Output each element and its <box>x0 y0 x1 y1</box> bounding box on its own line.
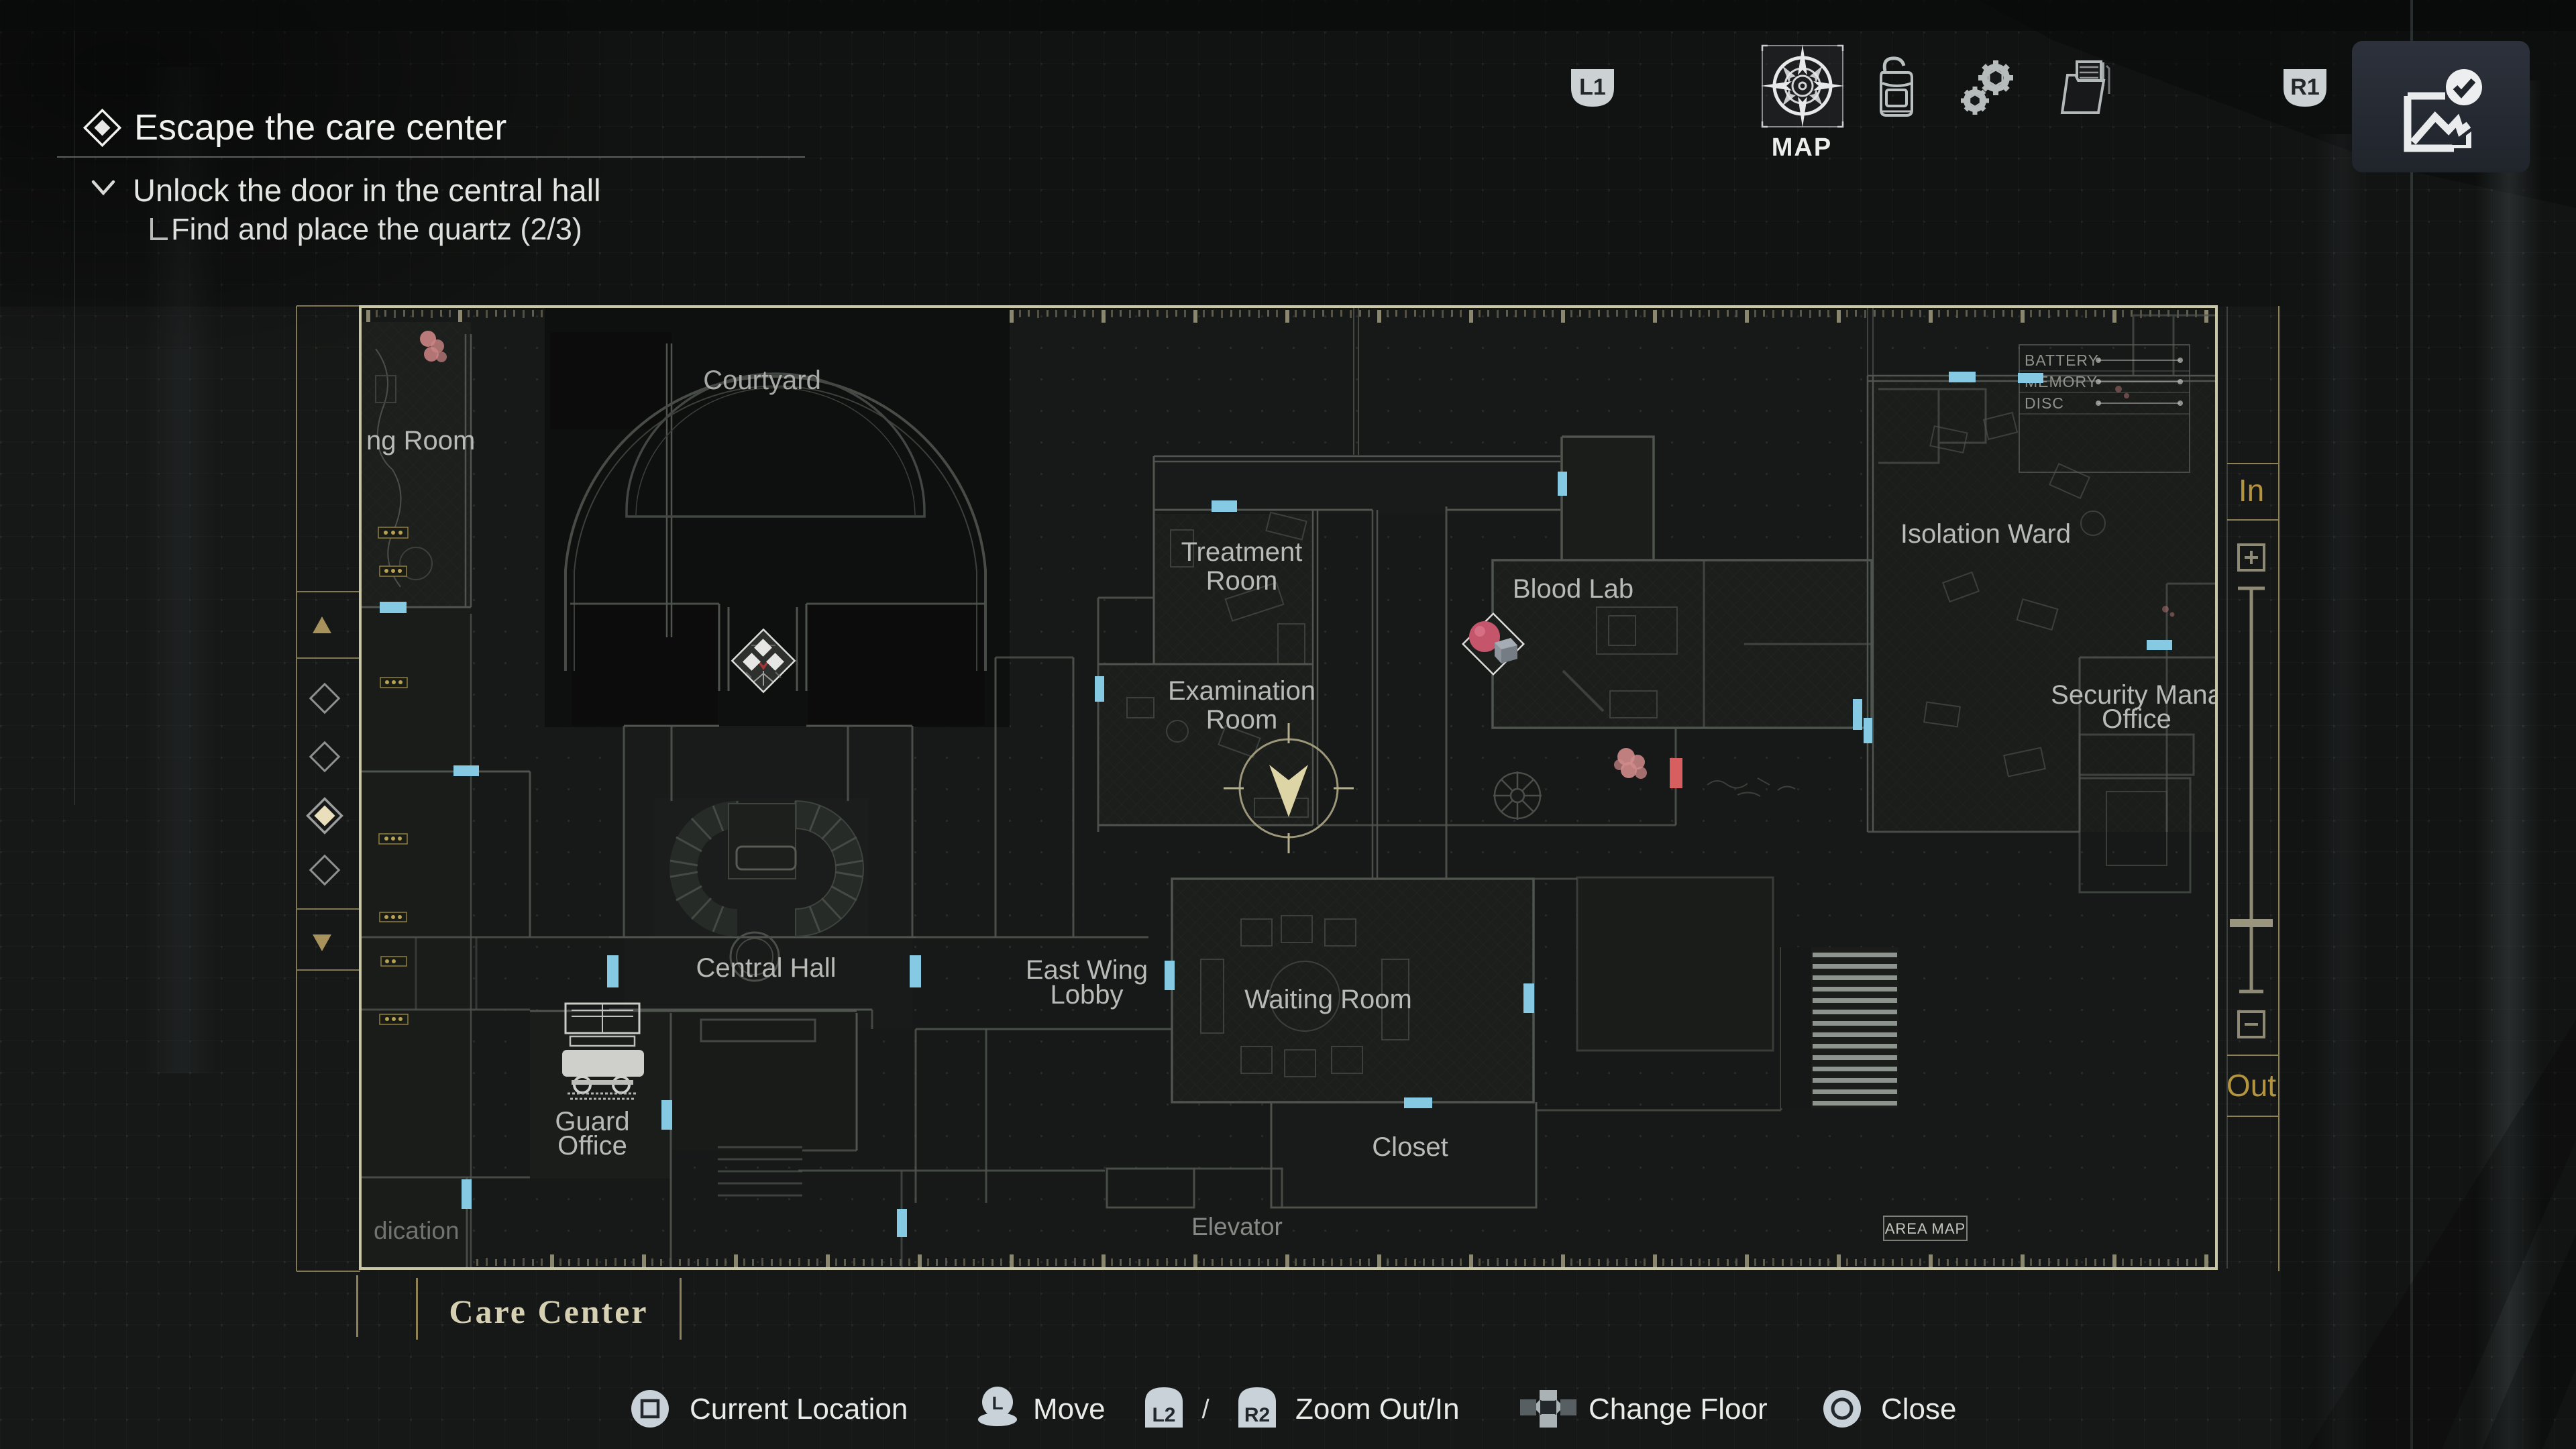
svg-text:Waiting Room: Waiting Room <box>1244 985 1412 1014</box>
svg-text:Examination: Examination <box>1168 676 1316 706</box>
svg-text:L1: L1 <box>1579 74 1606 100</box>
svg-text:Care Center: Care Center <box>449 1293 648 1330</box>
svg-text:/: / <box>1201 1395 1210 1424</box>
svg-text:DISC: DISC <box>2025 394 2064 412</box>
svg-text:Isolation Ward: Isolation Ward <box>1900 519 2071 549</box>
svg-text:Central Hall: Central Hall <box>696 953 837 983</box>
svg-text:Treatment: Treatment <box>1181 537 1303 567</box>
svg-text:Room: Room <box>1206 705 1278 735</box>
svg-text:L2: L2 <box>1152 1404 1175 1426</box>
svg-text:AREA MAP: AREA MAP <box>1885 1220 1966 1237</box>
svg-text:Change Floor: Change Floor <box>1589 1393 1768 1426</box>
svg-text:MAP: MAP <box>1772 133 1832 162</box>
svg-text:ng Room: ng Room <box>366 426 475 455</box>
svg-text:Blood Lab: Blood Lab <box>1513 574 1633 604</box>
svg-text:Find and place the quartz (2/3: Find and place the quartz (2/3) <box>171 212 582 246</box>
svg-text:dication: dication <box>374 1217 460 1244</box>
svg-text:Out: Out <box>2226 1068 2276 1103</box>
svg-text:Current Location: Current Location <box>690 1393 908 1426</box>
svg-text:Courtyard: Courtyard <box>703 366 821 395</box>
svg-text:Move: Move <box>1033 1393 1106 1426</box>
svg-text:Closet: Closet <box>1372 1132 1448 1162</box>
svg-text:Elevator: Elevator <box>1191 1213 1283 1240</box>
svg-text:Office: Office <box>557 1131 627 1161</box>
svg-text:In: In <box>2239 473 2264 508</box>
svg-text:Lobby: Lobby <box>1051 980 1124 1010</box>
svg-text:R1: R1 <box>2290 74 2319 100</box>
svg-text:BATTERY: BATTERY <box>2025 352 2099 369</box>
svg-text:Office: Office <box>2102 704 2171 734</box>
svg-text:Close: Close <box>1881 1393 1957 1426</box>
svg-text:Unlock the door in the central: Unlock the door in the central hall <box>133 172 601 208</box>
svg-text:L: L <box>991 1393 1003 1413</box>
svg-text:Zoom Out/In: Zoom Out/In <box>1295 1393 1460 1426</box>
svg-text:Room: Room <box>1206 566 1278 596</box>
svg-text:R2: R2 <box>1244 1404 1270 1426</box>
svg-text:Escape the care center: Escape the care center <box>134 107 506 148</box>
